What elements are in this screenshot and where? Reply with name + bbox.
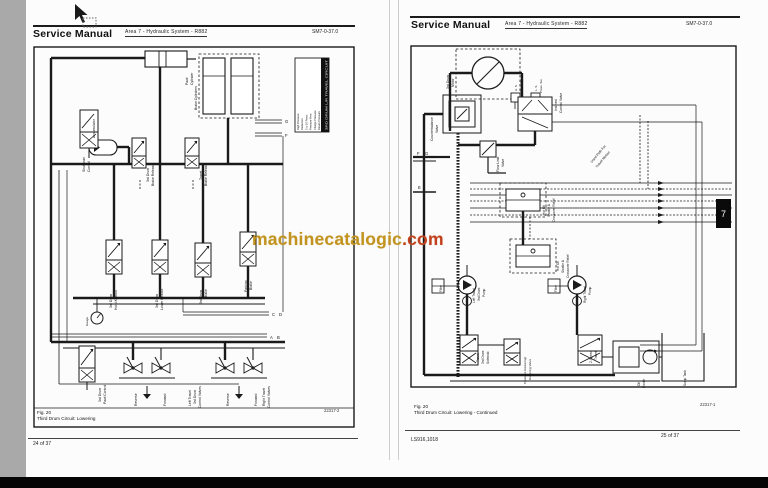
label-travel: Travel bbox=[199, 170, 203, 180]
label-2-speed: 2-Speed bbox=[589, 351, 593, 363]
label-forward: Forward bbox=[163, 393, 167, 406]
label-c: C bbox=[272, 312, 275, 317]
label-3rd-drum: 3rd Drum bbox=[446, 75, 450, 89]
right-page-bottom-rule bbox=[405, 430, 740, 431]
label-f: F bbox=[285, 133, 288, 138]
right-page-title: Service Manual bbox=[411, 19, 490, 31]
label-control: Control bbox=[87, 161, 91, 172]
left-page-bottom-rule bbox=[28, 438, 358, 439]
label-pawl-control: Pawl Control bbox=[103, 385, 107, 404]
legend-row: 3 to 10 Press bbox=[304, 114, 308, 130]
viewer-left-strip bbox=[0, 0, 26, 478]
viewer-bottom-bar bbox=[0, 477, 768, 488]
left-caption-code: 22317-2 bbox=[324, 408, 339, 414]
label-travel: Travel bbox=[594, 351, 598, 360]
watermark-suffix: .com bbox=[402, 229, 444, 249]
symbol-shape bbox=[573, 280, 582, 290]
label-brake: Brake bbox=[249, 281, 253, 290]
label-shutdown: Shutdown bbox=[82, 157, 86, 172]
label-3rd-drum: 3rd Drum bbox=[199, 290, 203, 304]
right-page-number: 25 of 37 bbox=[661, 433, 679, 439]
watermark-main: machinecatalogic bbox=[252, 229, 402, 249]
label-filter: Filter bbox=[439, 284, 443, 292]
left-caption-title: Third Drum Circuit: Lowering bbox=[37, 416, 95, 422]
symbol-shape bbox=[658, 206, 664, 210]
legend-row: Charge Pressure bbox=[313, 110, 317, 130]
symbol-shape bbox=[654, 350, 658, 353]
label-right-travel: Right Travel bbox=[583, 286, 587, 303]
label-g: G bbox=[285, 119, 288, 124]
label-b: B bbox=[277, 335, 280, 340]
label-brake-release: Brake Release bbox=[151, 164, 155, 186]
label-relieving-valve: Relieving Valve bbox=[528, 359, 532, 380]
label-lower-kickout: Lower Kickout bbox=[160, 289, 164, 310]
label-press-sw: Press. Sw. bbox=[519, 79, 523, 93]
label-a: A bbox=[270, 335, 273, 340]
label-g: G bbox=[425, 151, 428, 156]
label-motor: Motor bbox=[451, 77, 455, 87]
label-hot-oil: Hot Oil bbox=[542, 205, 546, 215]
right-header-code: SM7-0-37.0 bbox=[686, 21, 712, 27]
right-header-area: Area 7 - Hydraulic System - R882 bbox=[505, 21, 587, 29]
right-header-rule bbox=[410, 16, 740, 18]
label-shuttle: Shuttle & bbox=[547, 203, 551, 217]
pdf-viewer: { "viewer": { "left_strip_color": "#a9a9… bbox=[0, 0, 768, 488]
right-schematic: 3rd DrumMotorCounterbalanceValveH. S.Pre… bbox=[410, 45, 737, 405]
label-brake: Brake bbox=[204, 289, 208, 298]
symbol-shape bbox=[658, 220, 664, 224]
pipe-line bbox=[477, 62, 499, 84]
label-brake-cylinders: Brake Cylinders bbox=[194, 86, 198, 110]
label-control-valves: Control Valves bbox=[267, 386, 271, 408]
label-control-valve: Control Valve bbox=[559, 93, 563, 113]
component-box bbox=[518, 97, 552, 114]
label-3rd-drum: 3rd Drum bbox=[98, 388, 102, 402]
label-left-travel: Left Travel bbox=[472, 288, 476, 303]
label-pressure-reducing: Pressure Reducing/ bbox=[523, 357, 527, 384]
label-solenoid: Solenoid bbox=[486, 351, 490, 364]
label-hot-oil: Hot Oil bbox=[556, 261, 560, 271]
label-3rd-drum: 3rd Drum bbox=[193, 390, 197, 404]
label-valve: Valve bbox=[435, 125, 439, 133]
label-left-travel: Left Travel bbox=[188, 390, 192, 406]
legend-header: 3RD DRUM L/R TRAVEL CIRCUIT bbox=[325, 59, 329, 130]
symbol-shape bbox=[143, 394, 151, 399]
label-d: D bbox=[279, 312, 282, 317]
left-page-number: 24 of 37 bbox=[33, 441, 51, 447]
label-pump: Pump bbox=[482, 288, 486, 297]
label-cooler: Cooler bbox=[642, 378, 646, 388]
label-e: E bbox=[418, 185, 421, 190]
label-accumulator: Accumulator bbox=[92, 118, 96, 138]
pipe-line bbox=[97, 313, 101, 318]
label-pawl: Pawl bbox=[185, 77, 189, 85]
symbol-shape bbox=[658, 213, 664, 217]
label-counterbalance: Counterbalance bbox=[430, 117, 434, 141]
label-valve: Valve bbox=[501, 159, 505, 167]
legend-row: Pressure Free bbox=[309, 113, 313, 130]
label-3rd-drum: 3rd Drum bbox=[155, 294, 159, 308]
right-footer-code: LS916,1018 bbox=[411, 437, 438, 443]
label-oil: Oil bbox=[637, 382, 641, 386]
mouse-cursor bbox=[70, 2, 102, 34]
symbol-shape bbox=[235, 394, 243, 399]
label-brake-release: Brake Release bbox=[204, 164, 208, 186]
label-crossover-relief: Crossover Relief bbox=[566, 254, 570, 278]
symbol-shape bbox=[463, 280, 472, 290]
watermark: machinecatalogic.com bbox=[252, 229, 444, 250]
label-f: F bbox=[417, 151, 420, 156]
label-reverse: Reverse bbox=[134, 393, 138, 406]
label-reverse: Reverse bbox=[226, 393, 230, 406]
label-3rd-drum: 3rd Drum bbox=[146, 168, 150, 182]
right-caption-title: Third Drum Circuit: Lowering - Continued bbox=[414, 410, 497, 416]
component-box bbox=[231, 58, 253, 114]
label-cylinder: Cylinder bbox=[190, 72, 194, 85]
label-hoist-kickout: Hoist Kickout bbox=[114, 290, 118, 310]
section-tab-7: 7 bbox=[716, 199, 731, 228]
legend-row: Reduction bbox=[300, 118, 304, 130]
label-forward: Forward bbox=[254, 393, 258, 406]
label-3rd-drum: 3rd Drum bbox=[477, 287, 481, 301]
label-flow-limit: Flow Limit bbox=[496, 157, 500, 172]
label-travel: Travel bbox=[476, 353, 480, 362]
label-sump-tank: Sump Tank bbox=[683, 370, 687, 386]
label-h-s: H. S. bbox=[514, 84, 518, 91]
label-shuttle: Shuttle & bbox=[561, 259, 565, 273]
label-control-valves: Control Valves bbox=[198, 386, 202, 408]
label-filter: Filter bbox=[554, 284, 558, 292]
symbol-shape bbox=[658, 193, 664, 197]
legend-row: High Pressure bbox=[296, 113, 300, 130]
label-3rd-drum: 3rd Drum bbox=[109, 294, 113, 308]
label-gauge: Gauge bbox=[85, 317, 89, 326]
label-l-s: L. S. bbox=[534, 85, 538, 91]
left-header-code: SM7-0-37.0 bbox=[312, 29, 338, 35]
label-3rd-drum: 3rd Drum bbox=[481, 350, 485, 364]
label-press-sw: Press. Sw. bbox=[539, 79, 543, 93]
label-pump: Pump bbox=[588, 286, 592, 295]
component-box bbox=[203, 58, 225, 114]
symbol-shape bbox=[658, 187, 664, 191]
component-box bbox=[613, 341, 659, 373]
legend-row: Return Pressure bbox=[317, 111, 321, 130]
symbol-shape bbox=[658, 199, 664, 203]
left-header-area: Area 7 - Hydraulic System - R882 bbox=[125, 29, 207, 37]
component-box bbox=[619, 347, 639, 367]
label-crossover-relief: Crossover Relief bbox=[552, 198, 556, 222]
right-caption-code: 22317-1 bbox=[700, 402, 715, 408]
label-right-travel: Right Travel bbox=[262, 388, 266, 406]
symbol-shape bbox=[658, 181, 664, 185]
label-inclined: Inclined bbox=[554, 99, 558, 111]
label-parking: Parking bbox=[244, 280, 248, 292]
